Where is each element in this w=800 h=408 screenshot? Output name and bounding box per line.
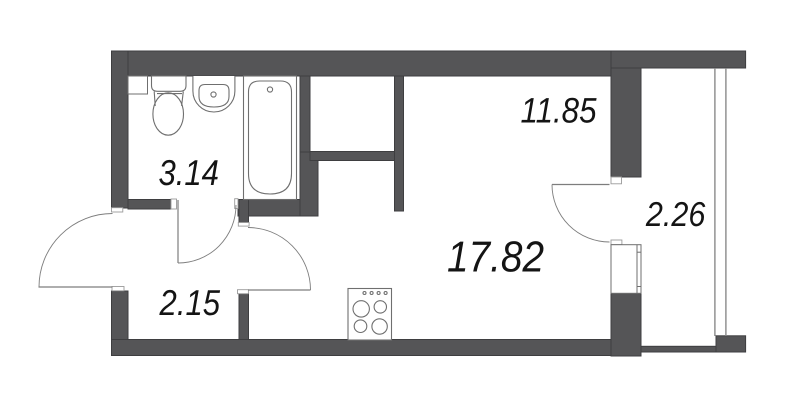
svg-text:2.15: 2.15 [159,282,221,323]
svg-text:2.26: 2.26 [645,196,706,234]
svg-text:3.14: 3.14 [158,152,219,193]
svg-text:11.85: 11.85 [521,91,597,131]
svg-text:17.82: 17.82 [447,234,544,282]
